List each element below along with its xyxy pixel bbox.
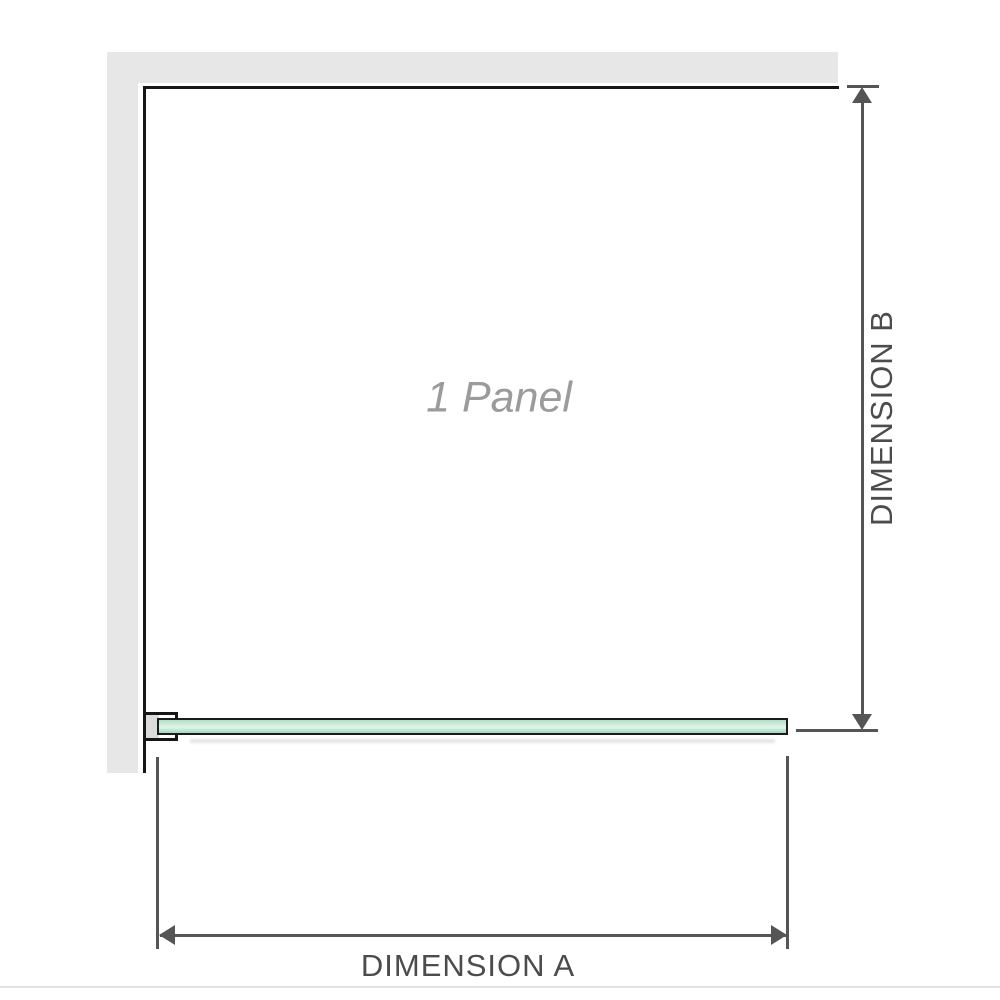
wall-top <box>107 52 838 83</box>
wall-left <box>107 52 138 773</box>
dimension-diagram: 1 Panel DIMENSION B DIMENSION A <box>0 0 1000 1000</box>
dimension-a-extension-left <box>156 757 159 949</box>
bottom-divider <box>0 986 1000 988</box>
enclosure-left-edge <box>143 86 146 773</box>
glass-panel-shadow <box>190 739 775 743</box>
arrow-left-icon <box>159 925 175 945</box>
glass-panel <box>157 718 788 735</box>
panel-caption: 1 Panel <box>426 374 572 423</box>
enclosure-top-edge <box>143 86 839 89</box>
dimension-a-extension-right <box>786 756 789 949</box>
dimension-a-label: DIMENSION A <box>361 948 575 984</box>
arrow-up-icon <box>852 87 872 103</box>
arrow-right-icon <box>771 925 787 945</box>
arrow-down-icon <box>852 714 872 730</box>
dimension-b-label: DIMENSION B <box>864 310 900 526</box>
dimension-a-line <box>160 934 787 937</box>
